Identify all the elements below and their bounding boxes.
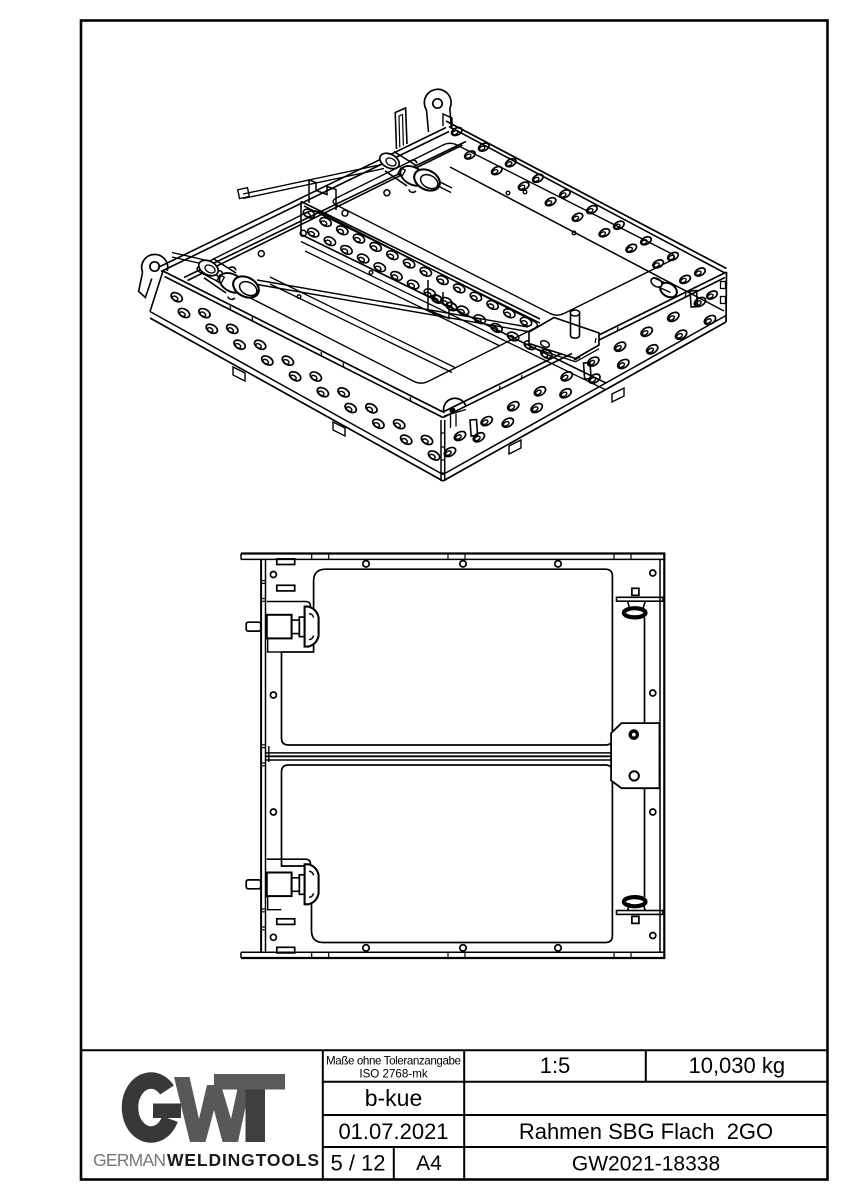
svg-text:A4: A4 [416, 1152, 442, 1175]
svg-text:ISO 2768-mk: ISO 2768-mk [359, 1068, 428, 1081]
svg-text:10,030 kg: 10,030 kg [688, 1053, 785, 1078]
svg-text:Rahmen SBG Flach 2GO: Rahmen SBG Flach 2GO [519, 1119, 773, 1144]
svg-text:5 / 12: 5 / 12 [330, 1151, 385, 1176]
svg-text:b-kue: b-kue [365, 1085, 423, 1111]
svg-text:GERMAN: GERMAN [93, 1150, 167, 1170]
svg-text:Maße ohne Toleranzangabe: Maße ohne Toleranzangabe [326, 1055, 461, 1068]
svg-text:1:5: 1:5 [540, 1053, 571, 1078]
svg-text:WELDINGTOOLS: WELDINGTOOLS [167, 1150, 320, 1170]
svg-text:GW2021-18338: GW2021-18338 [572, 1153, 720, 1176]
svg-text:01.07.2021: 01.07.2021 [338, 1119, 448, 1144]
